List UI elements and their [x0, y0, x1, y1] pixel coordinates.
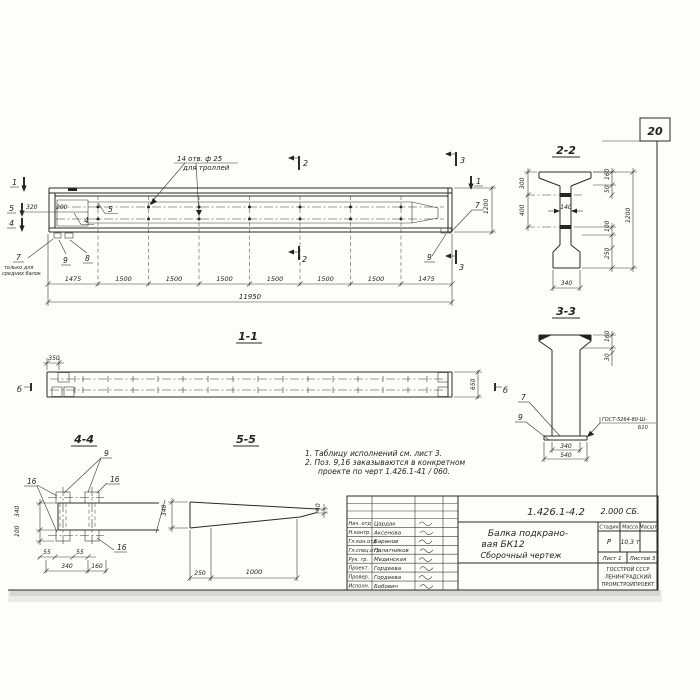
org-line-3: ПРОМСТРОЙПРОЕКТ: [602, 581, 656, 588]
note-line-2: 2. Поз. 9,16 заказываются в конкретном: [305, 458, 466, 467]
view-4-4: 4-4 9 16 16 16: [14, 433, 165, 574]
sheet-number: 20: [647, 125, 663, 138]
section-2-2-outline: [539, 172, 591, 268]
plan-centerlines: [50, 379, 446, 390]
view-5-5-label: 5-5: [236, 433, 256, 446]
drawing-sheet: 20 14 отв. ф 25 для троллей 1: [0, 0, 700, 700]
view-4-4-pos: 9 16 16 16: [24, 449, 127, 552]
mass-value: 10,3 т: [621, 539, 640, 546]
sheet-info: Лист 1: [601, 556, 621, 562]
dim-140: 140: [560, 204, 572, 211]
signer-name: Гордеева: [374, 566, 402, 572]
embedded-plate-mark: [68, 188, 77, 191]
dim-100-v44: 100: [14, 525, 21, 537]
dim-seg-1: 1475: [65, 275, 82, 283]
dim-160-s33: 160: [604, 330, 611, 342]
pos-9-v44: 9: [104, 449, 109, 458]
note-line-1: 1. Таблицу исполнений см. лист 3.: [305, 449, 442, 458]
bottom-dim-chain: 1475 1500 1500 1500 1500 1500 1500 1475 …: [46, 234, 455, 306]
signer-role: Рук. гр.: [349, 557, 369, 563]
note-line-3: проекте по черт 1.426.1-41 / 060.: [318, 467, 450, 476]
signer-name: Баранов: [374, 539, 398, 545]
weld-note-1: ГОСТ-5264-80-Ш-: [602, 417, 647, 423]
signer-role: Нач. отд: [349, 521, 372, 527]
beam-web-panel: [57, 200, 438, 226]
beam-pos-marks: 5 4: [74, 203, 118, 225]
doc-code: 2.000 СБ.: [600, 507, 639, 516]
signer-role: Провер.: [349, 575, 370, 581]
dim-seg-8: 1475: [418, 275, 435, 283]
title-block: 1.426.1-4.2 2.000 СБ. Балка подкрано- ва…: [347, 496, 659, 590]
section-marks: 2 2 3 3: [288, 152, 465, 273]
scale-label: Масшт.: [639, 525, 658, 531]
section-3-3-pos: 7 9: [515, 393, 560, 440]
dim-340-left-v44: 340: [14, 505, 21, 517]
weld-note-2: Б10: [638, 425, 648, 431]
doc-number: 1.426.1-4.2: [527, 507, 585, 518]
plan-dims: 350 650: [43, 355, 482, 400]
left-cut-marks: 1 5 4: [7, 177, 27, 232]
stage-label: Стадия: [599, 525, 618, 531]
dim-seg-5: 1500: [267, 275, 284, 283]
section-3-3-view: 3-3 160 30 340 540 7 9 ГОСТ-5264-80-Ш-: [515, 305, 656, 462]
dim-250-v55: 250: [194, 570, 206, 577]
dim-total-label: 11950: [239, 293, 262, 301]
pos-5: 5: [108, 205, 113, 214]
view-4-4-label: 4-4: [73, 433, 94, 446]
dim-300: 300: [519, 177, 526, 189]
hole-centerlines: [56, 207, 444, 219]
plan-b-marks: б б: [17, 383, 508, 395]
scan-shadow-dark: [10, 590, 660, 596]
dim-seg-3: 1500: [166, 275, 183, 283]
dim-seg-7: 1500: [368, 275, 385, 283]
dim-350: 350: [48, 355, 60, 362]
doc-title-3: Сборочный чертеж: [481, 551, 563, 560]
section-3-top: 3: [460, 156, 465, 165]
view-4-4-band: [58, 503, 159, 530]
dim-seg-2: 1500: [115, 275, 132, 283]
pos-7-right: 7: [475, 201, 480, 210]
pos-9-s33: 9: [518, 413, 523, 422]
beam-elevation-view: 14 отв. ф 25 для троллей 1 5 4 1: [2, 152, 496, 307]
pos-4: 4: [84, 216, 89, 225]
mark-4-left: 4: [9, 219, 14, 228]
dim-160-v44: 160: [91, 563, 103, 570]
weld-callout: ГОСТ-5264-80-Ш- Б10: [587, 417, 656, 437]
notes: 1. Таблицу исполнений см. лист 3. 2. Поз…: [305, 449, 466, 476]
view-5-5: 5-5 340 40 250 1000: [161, 433, 328, 581]
pos-9-left: 9: [63, 256, 68, 265]
org-line-2: ЛЕНИНГРАДСКИЙ: [605, 574, 651, 581]
plan-bolt-ticks: [75, 376, 427, 393]
signer-role: Гл.кон.отд: [349, 539, 377, 545]
view-5-5-dims: 340 40 250 1000: [161, 498, 328, 581]
dim-400: 400: [519, 204, 526, 216]
pos-8: 8: [85, 254, 90, 263]
mark-1-left: 1: [12, 178, 17, 187]
dim-1200-section: 1200: [625, 208, 632, 223]
signer-name: Аксенова: [373, 530, 402, 536]
doc-title-2: вая БК12: [481, 540, 524, 550]
dim-200: 200: [56, 204, 68, 211]
dim-30-s33: 30: [604, 353, 611, 361]
hole-column-lines: [98, 196, 401, 286]
pos-16-left: 16: [27, 477, 37, 486]
signer-role: Проект.: [349, 566, 370, 572]
pos-7-s33: 7: [521, 393, 526, 402]
plan-1-1-view: 1-1 350 650 б б: [17, 330, 508, 400]
dim-340-s33: 340: [560, 443, 572, 450]
dim-340-section22: 340: [561, 280, 573, 287]
view-4-4-bolt-plates: [56, 492, 99, 541]
plan-outline: [47, 372, 452, 397]
section-2-2-view: 2-2 300 400 140 160 50 100 250 1200 340: [519, 144, 637, 291]
dim-55-a: 55: [43, 549, 51, 556]
plan-1-1-label: 1-1: [238, 330, 258, 343]
pos-16-right: 16: [110, 475, 120, 484]
stage-value: Р: [607, 538, 612, 546]
bearing-pads: [539, 335, 591, 341]
section-2-top: 2: [303, 159, 308, 168]
view-5-5-wedge: [190, 502, 317, 528]
signer-name: Мединская: [374, 557, 407, 563]
mark-b-left: б: [17, 385, 22, 394]
mass-label: Масса: [622, 525, 638, 531]
sheets-info: Листов 3: [629, 556, 656, 562]
dim-340-bottom-v44: 340: [61, 563, 73, 570]
signer-role: Н.контр.: [349, 530, 371, 536]
pos-7-left: 7: [16, 253, 21, 262]
section-3-3-outline: [539, 335, 591, 440]
section-3-bottom: 3: [459, 263, 464, 272]
doc-title-1: Балка подкрано-: [488, 529, 568, 539]
plan-corner-plates: [52, 373, 448, 397]
mark-1-right: 1: [476, 177, 481, 186]
left-end-clips: 7 только для средних балок 9 8: [2, 233, 93, 277]
dim-160: 160: [604, 168, 611, 180]
pos-9-right: 9: [427, 253, 432, 262]
signer-name: Гордеева: [374, 575, 402, 581]
dim-55-b: 55: [76, 549, 84, 556]
dim-seg-6: 1500: [317, 275, 334, 283]
holes-callout-text-1: 14 отв. ф 25: [177, 155, 223, 163]
view-4-4-dims: 340 100 55 55 340 160: [14, 499, 109, 574]
signatures: [419, 522, 433, 588]
dim-1200-label: 1200: [483, 199, 490, 214]
dim-650: 650: [470, 378, 477, 390]
dim-320: 320: [26, 204, 38, 211]
section-3-3-label: 3-3: [556, 305, 576, 318]
dim-100: 100: [604, 220, 611, 232]
holes-callout-text-2: для троллей: [182, 164, 230, 172]
mark-5-left: 5: [9, 204, 14, 213]
mark-b-right: б: [503, 386, 508, 395]
signer-name: Цардак: [374, 521, 396, 527]
dim-340-v55: 340: [161, 504, 168, 516]
section-2-bottom: 2: [302, 255, 307, 264]
dim-540-s33: 540: [560, 452, 572, 459]
signers-rows: Нач. отд Цардак Н.контр. Аксенова Гл.кон…: [349, 521, 434, 590]
dim-250: 250: [604, 247, 611, 259]
signer-role: Исполн.: [349, 584, 370, 590]
section-3-3-dims: 160 30 340 540: [542, 330, 617, 462]
section-2-2-label: 2-2: [556, 144, 576, 157]
dim-50: 50: [604, 185, 611, 193]
dim-1000-v55: 1000: [246, 568, 263, 576]
dim-40-v55: 40: [315, 503, 322, 511]
org-line-1: ГОССТРОЙ СССР: [607, 566, 650, 573]
signer-name: Бобович: [374, 584, 399, 590]
pos-16-bottom: 16: [117, 543, 127, 552]
pos-7-note-2: средних балок: [2, 271, 41, 277]
section-2-2-dims: 300 400 140 160 50 100 250 1200 340: [519, 168, 637, 291]
signer-name: Палатников: [374, 548, 409, 554]
dim-seg-4: 1500: [216, 275, 233, 283]
